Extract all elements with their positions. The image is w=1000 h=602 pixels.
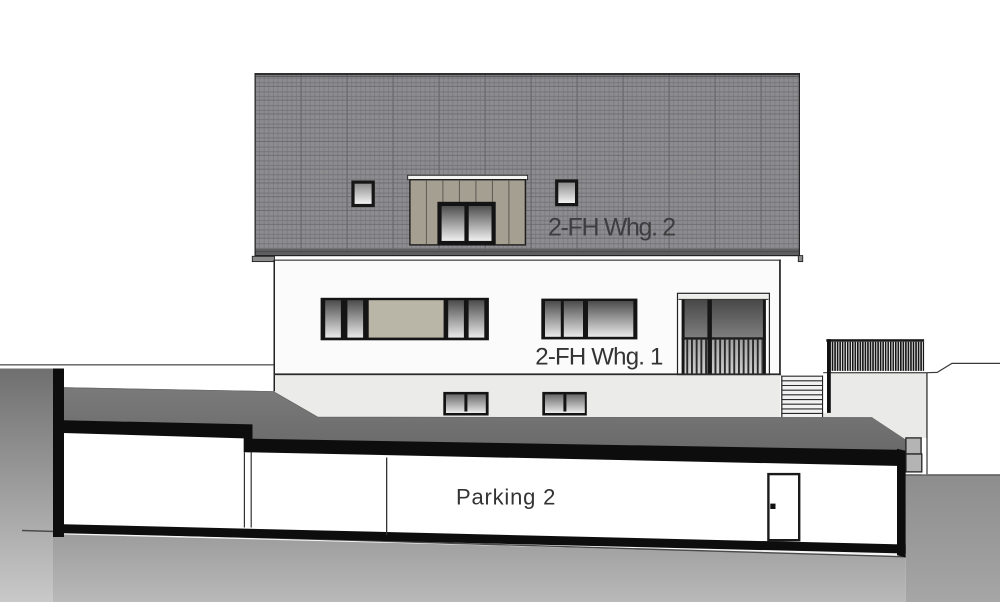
svg-text:2-FH Whg. 1: 2-FH Whg. 1 [535,343,663,370]
svg-text:2-FH Whg. 2: 2-FH Whg. 2 [548,214,675,242]
svg-text:Parking 2: Parking 2 [456,485,556,510]
